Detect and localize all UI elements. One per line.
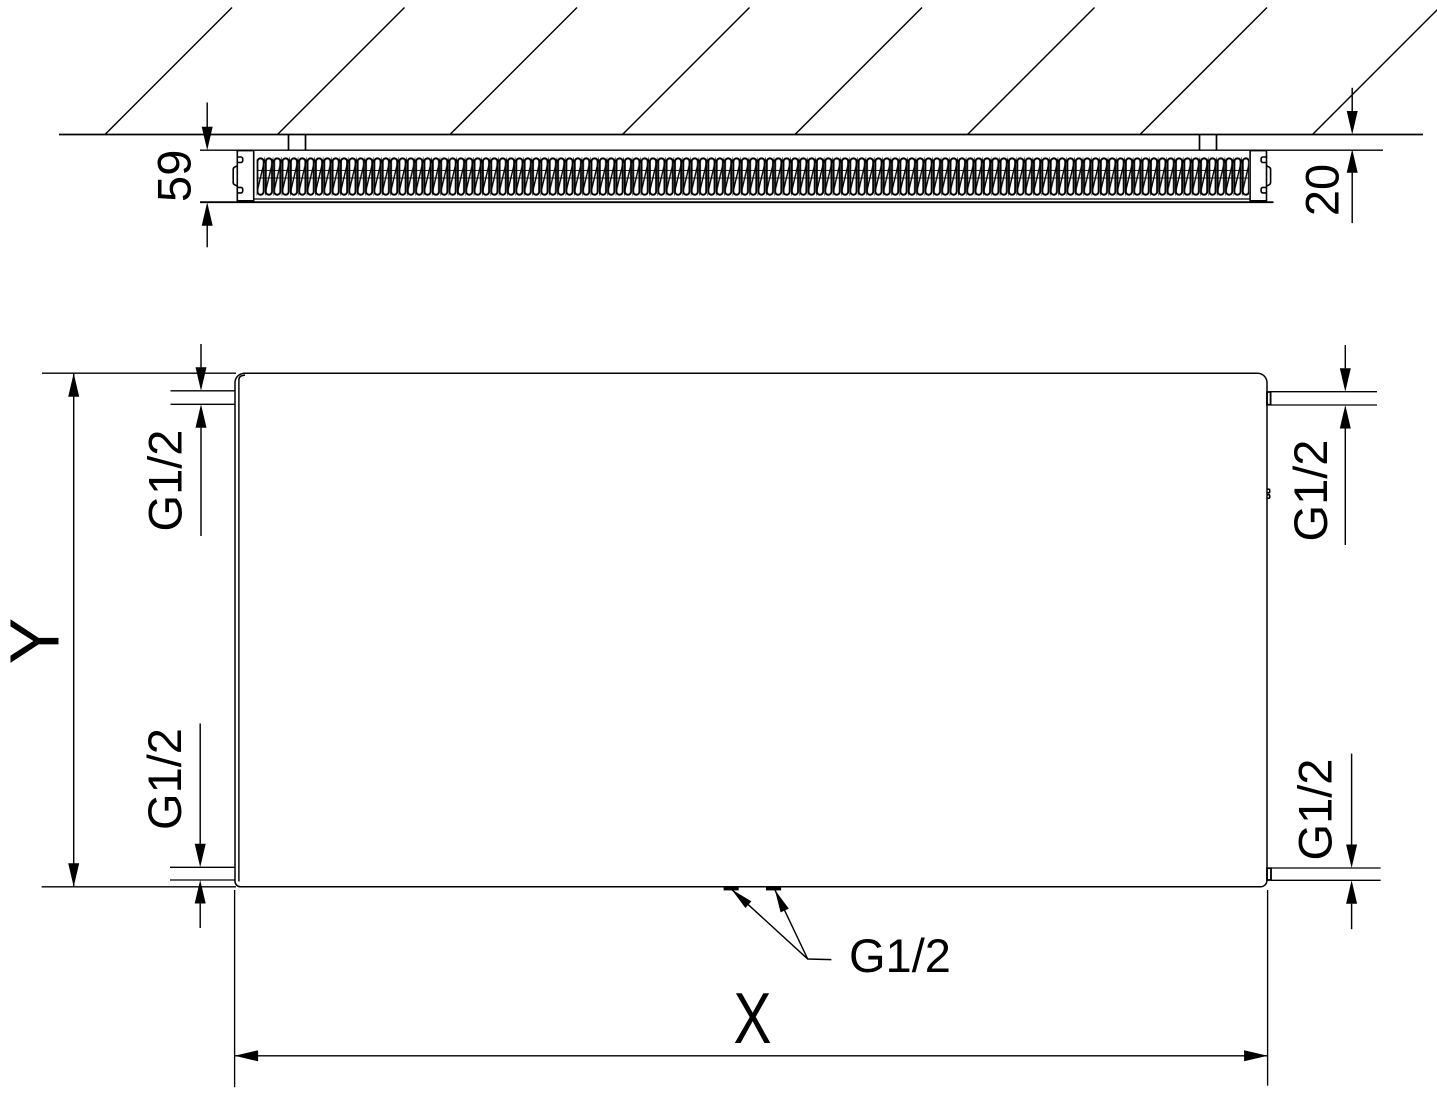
svg-text:59: 59 <box>147 150 200 202</box>
svg-text:X: X <box>734 979 772 1059</box>
svg-text:20: 20 <box>1295 164 1348 216</box>
svg-text:G1/2: G1/2 <box>1288 759 1341 861</box>
svg-text:G1/2: G1/2 <box>1284 440 1337 542</box>
svg-text:G1/2: G1/2 <box>849 929 951 982</box>
svg-text:G1/2: G1/2 <box>138 728 191 830</box>
svg-text:G1/2: G1/2 <box>138 430 191 532</box>
svg-text:Y: Y <box>0 618 74 665</box>
